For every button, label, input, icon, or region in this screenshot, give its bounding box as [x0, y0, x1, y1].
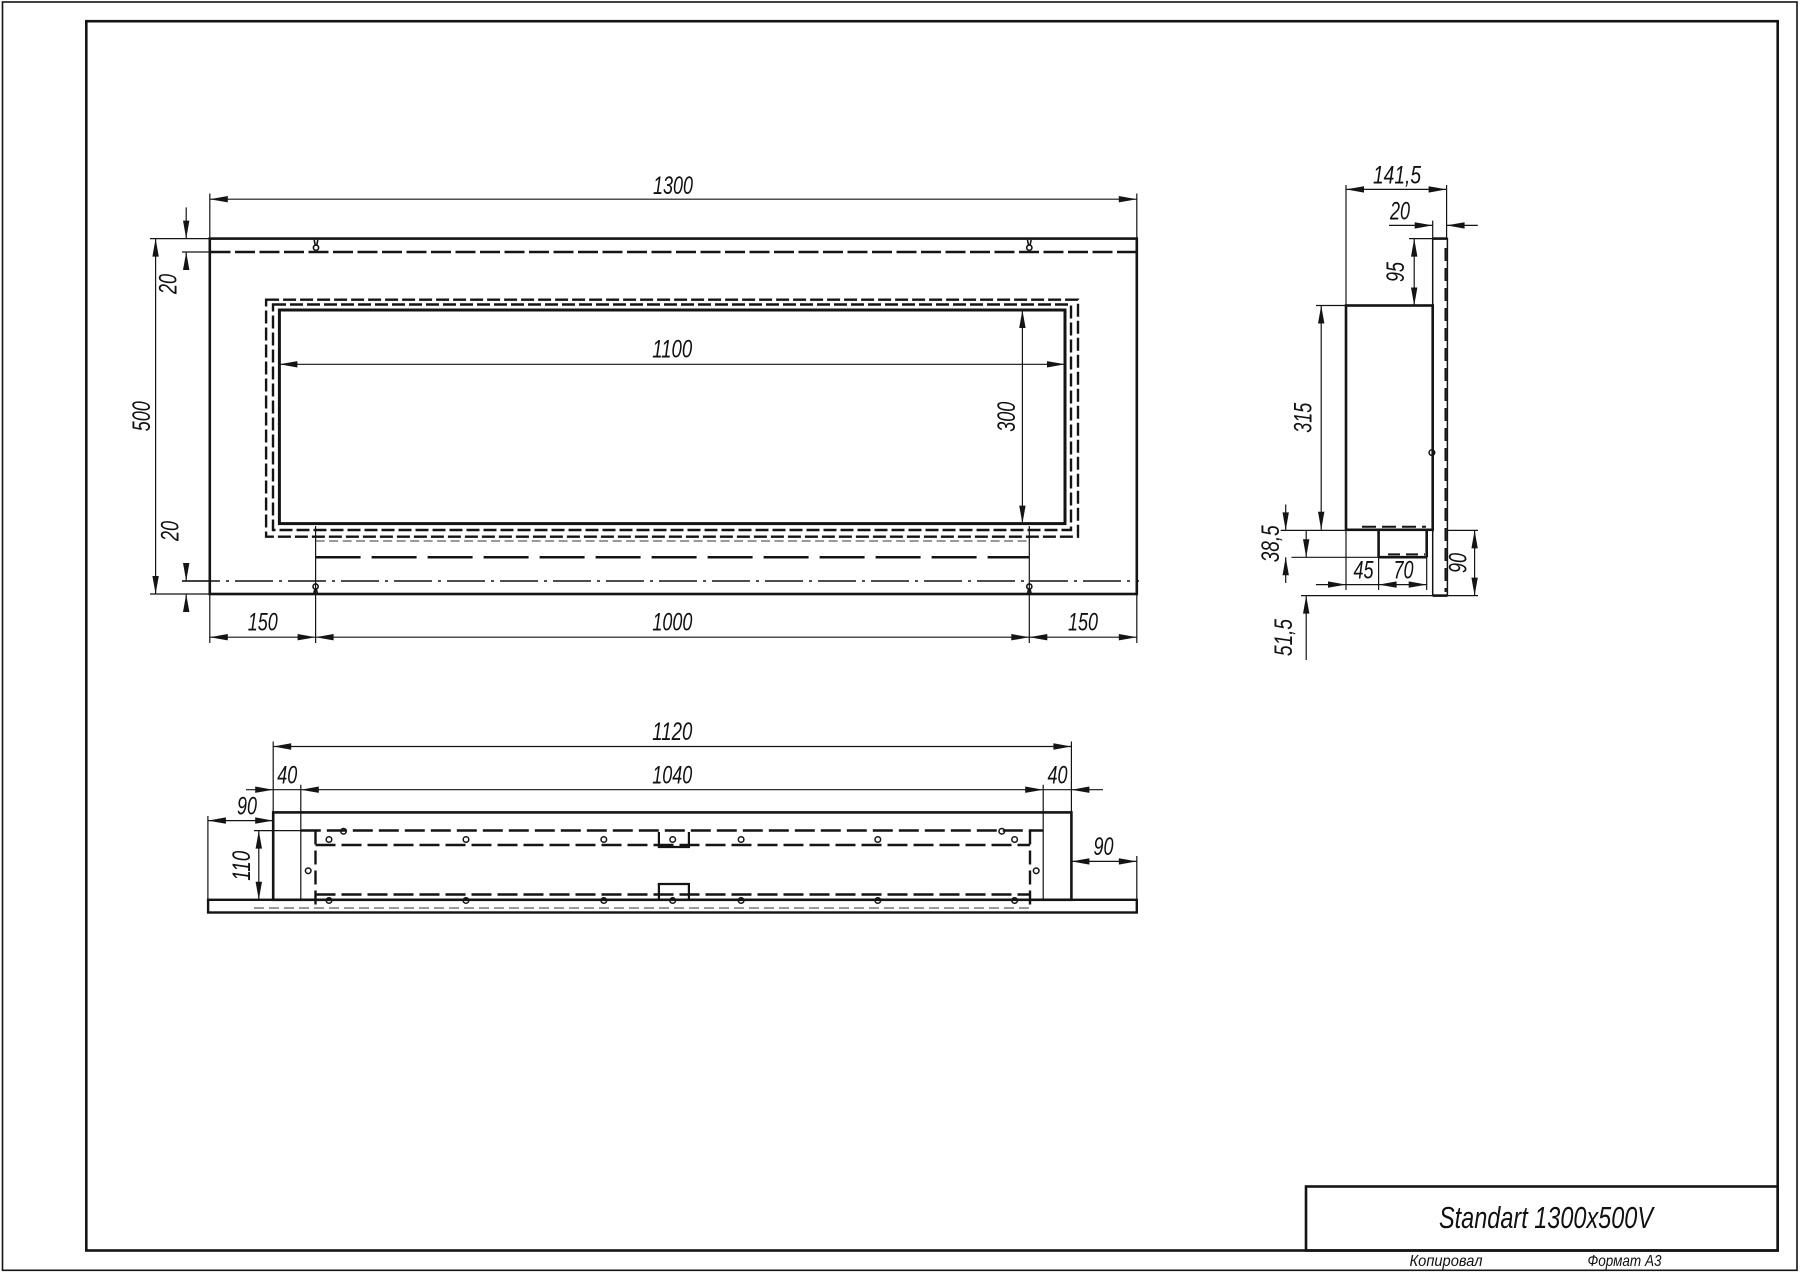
- svg-text:90: 90: [237, 792, 257, 820]
- svg-text:20: 20: [155, 274, 183, 295]
- svg-text:45: 45: [1354, 557, 1374, 585]
- svg-text:38,5: 38,5: [1257, 525, 1285, 562]
- svg-text:90: 90: [1094, 833, 1114, 861]
- svg-text:20: 20: [1389, 198, 1410, 226]
- svg-text:1000: 1000: [652, 609, 692, 637]
- svg-text:150: 150: [1068, 609, 1098, 637]
- svg-text:110: 110: [228, 851, 256, 881]
- svg-text:90: 90: [1444, 553, 1472, 573]
- svg-text:500: 500: [128, 401, 156, 431]
- svg-text:1120: 1120: [652, 718, 692, 746]
- svg-text:141,5: 141,5: [1373, 162, 1421, 190]
- svg-text:40: 40: [277, 761, 297, 789]
- svg-text:1100: 1100: [652, 336, 692, 364]
- svg-text:70: 70: [1394, 557, 1414, 585]
- svg-text:300: 300: [993, 402, 1021, 432]
- svg-text:95: 95: [1382, 262, 1410, 282]
- svg-text:1300: 1300: [653, 172, 693, 200]
- svg-text:Копировал: Копировал: [1410, 1253, 1483, 1270]
- svg-text:51,5: 51,5: [1270, 619, 1298, 656]
- svg-text:20: 20: [157, 521, 185, 542]
- svg-text:150: 150: [248, 609, 278, 637]
- svg-text:Формат А3: Формат А3: [1588, 1253, 1662, 1270]
- svg-text:1040: 1040: [652, 761, 692, 789]
- svg-text:40: 40: [1048, 761, 1068, 789]
- svg-text:Standart 1300x500V: Standart 1300x500V: [1439, 1200, 1656, 1235]
- svg-text:315: 315: [1290, 403, 1318, 433]
